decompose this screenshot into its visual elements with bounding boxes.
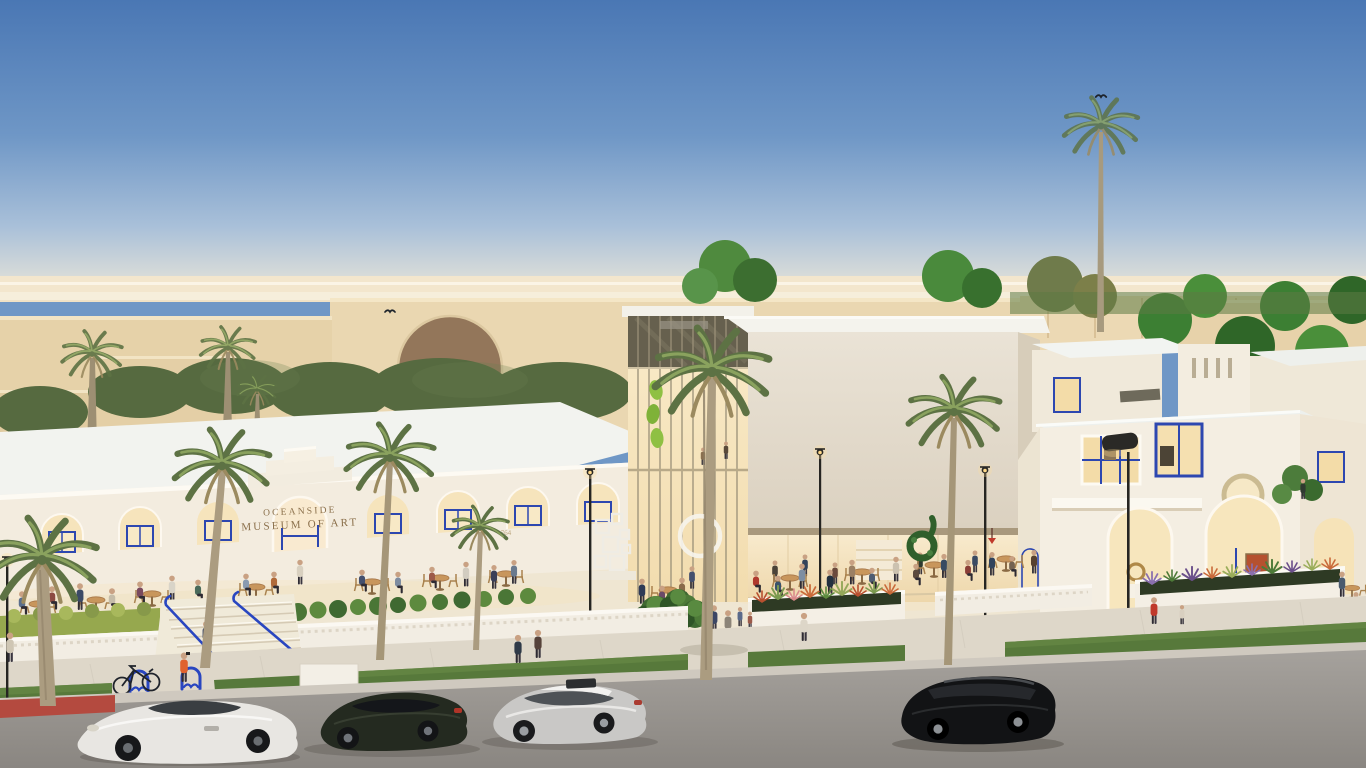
- camera: [186, 652, 190, 655]
- tail-light: [634, 700, 642, 705]
- rendering-canvas: OCEANSIDE MUSEUM OF ART 764: [0, 0, 1366, 768]
- glass-atrium: [622, 306, 754, 602]
- scene: OCEANSIDE MUSEUM OF ART 764: [0, 0, 1366, 768]
- arch-window: [119, 507, 161, 550]
- cube-face: [748, 332, 1018, 528]
- upper-window-small: [1054, 378, 1080, 412]
- tail-light: [454, 708, 462, 713]
- upper-window-right: [1156, 424, 1202, 476]
- atrium-fascia: [622, 306, 754, 317]
- sunroof: [566, 678, 596, 689]
- sky: [0, 0, 1366, 302]
- arch-window: [507, 487, 549, 529]
